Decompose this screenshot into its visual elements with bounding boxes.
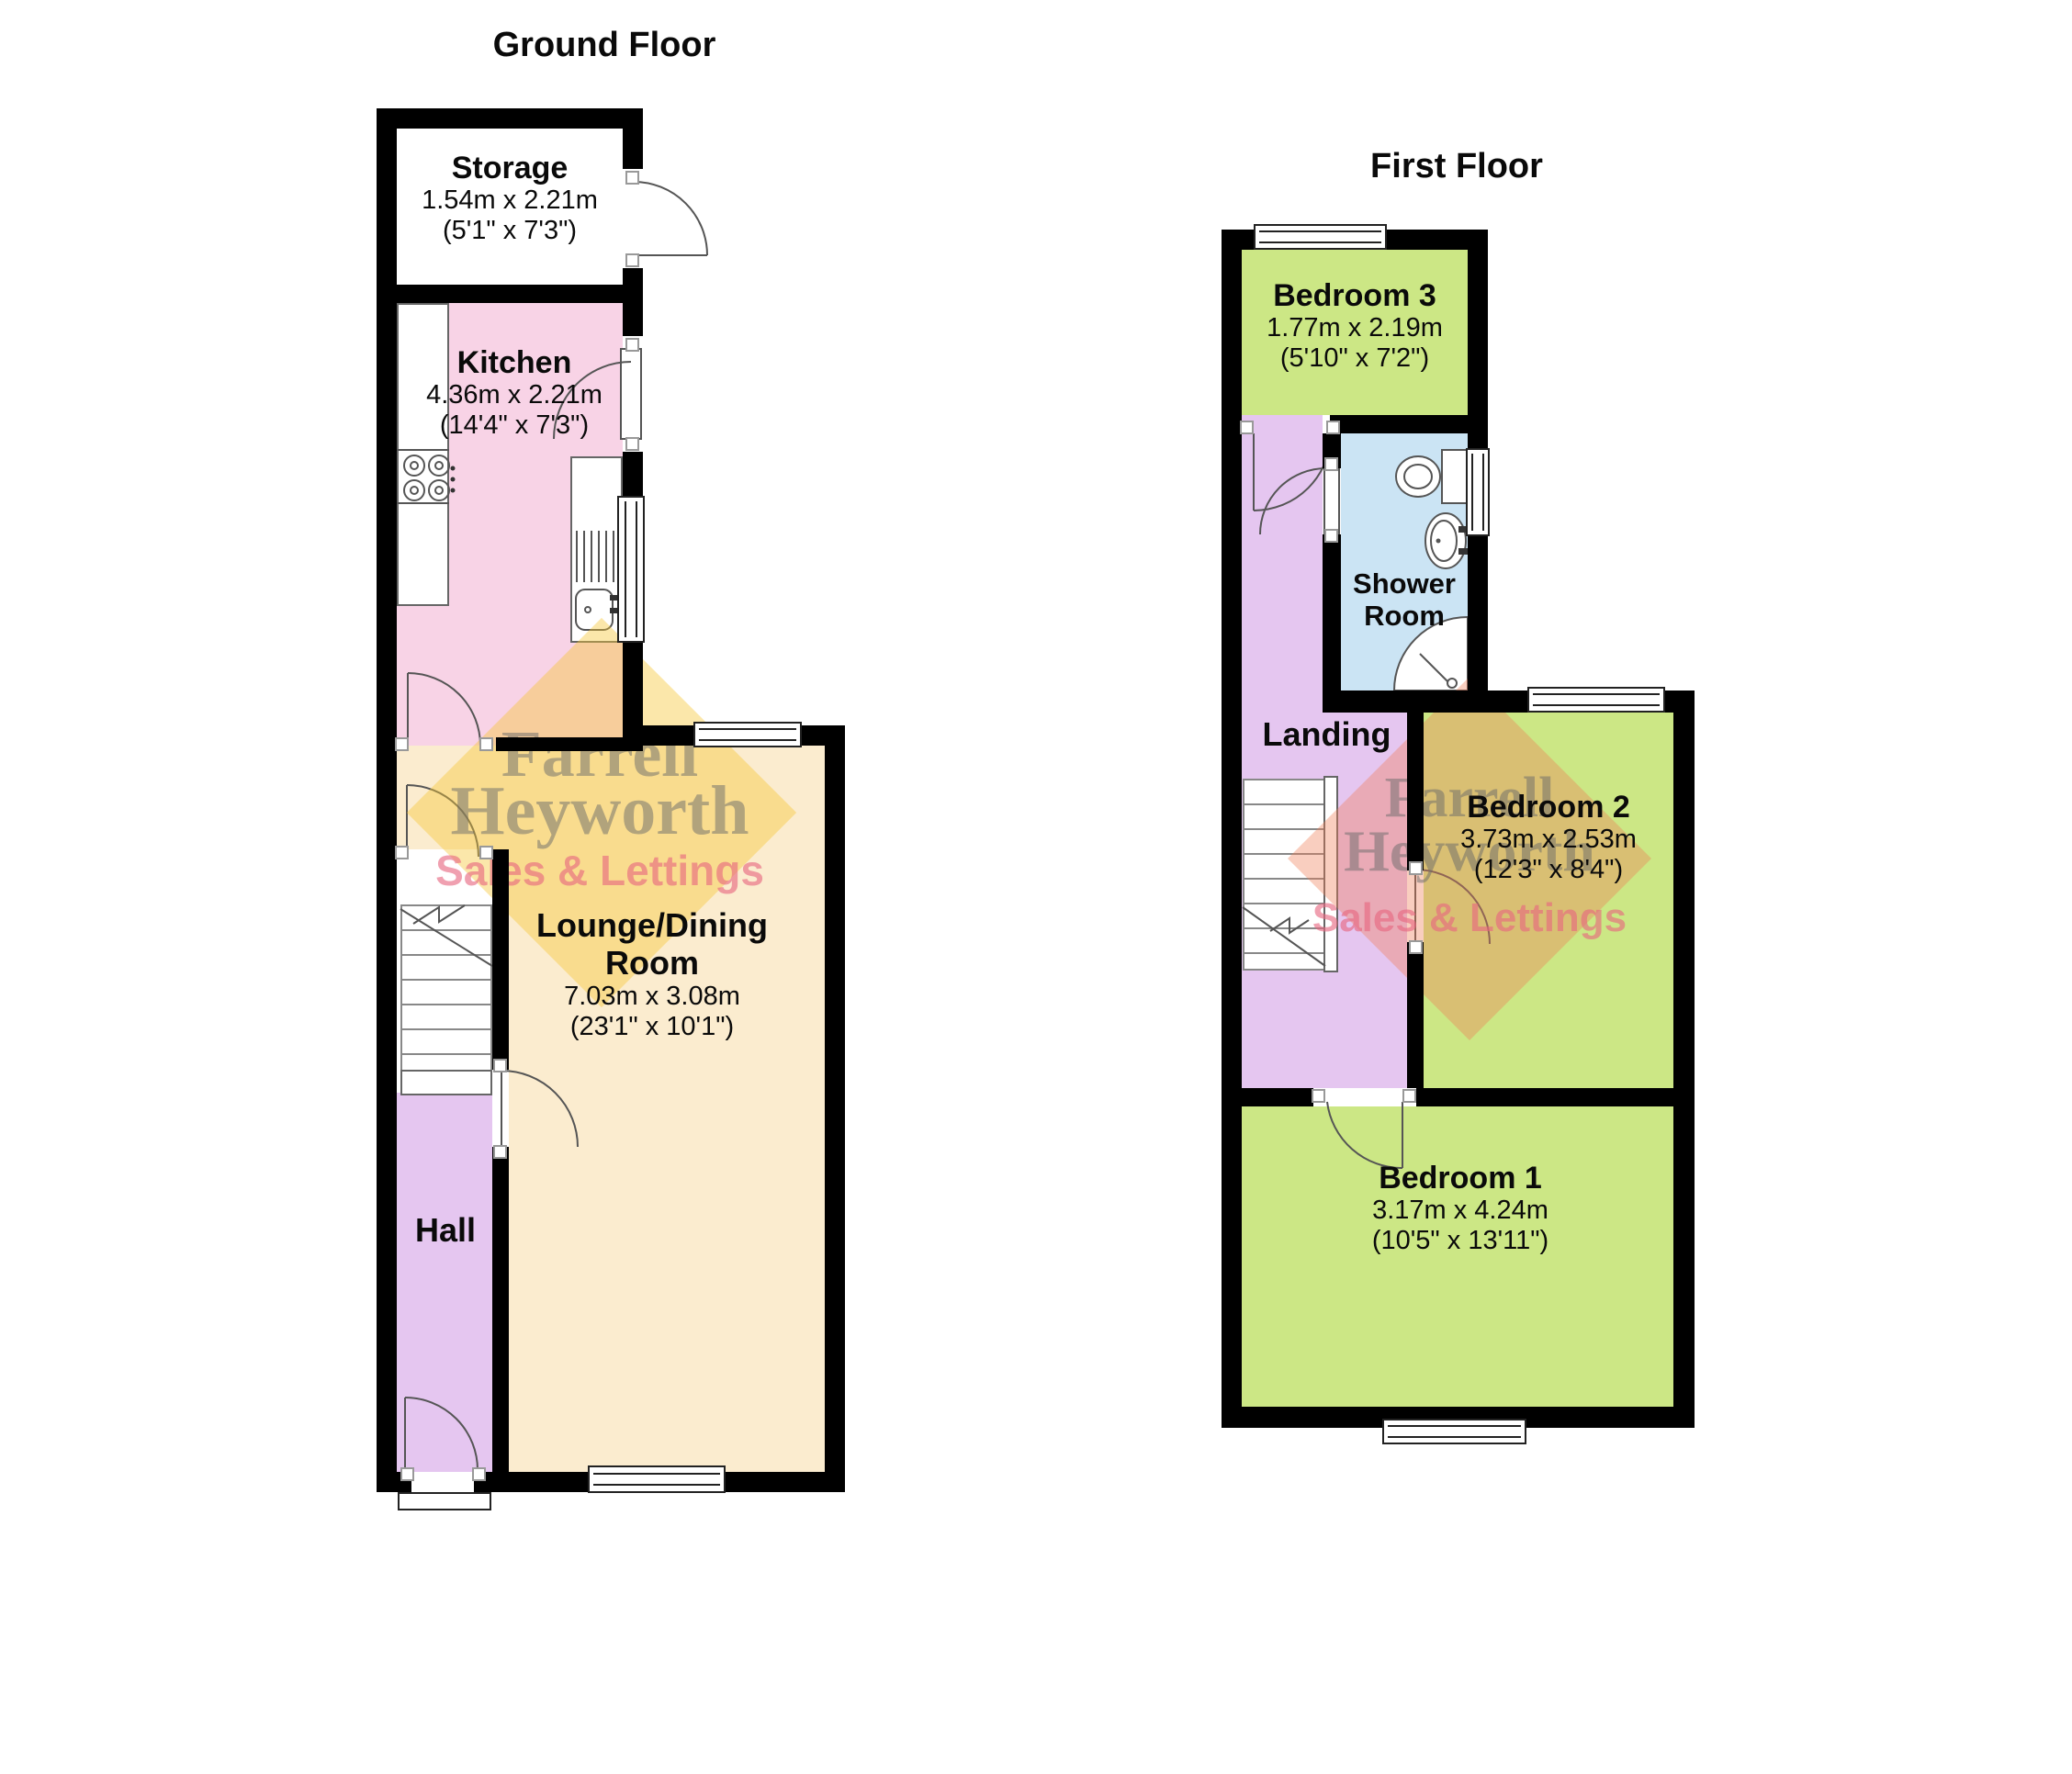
room-size-metric: 3.73m x 2.53m — [1425, 825, 1672, 855]
kitchen-sink-icon — [576, 531, 621, 630]
wall-segment — [623, 268, 643, 336]
wall-segment — [492, 849, 509, 1070]
room-size-metric: 4.36m x 2.21m — [404, 380, 625, 410]
first-floor-title: First Floor — [1273, 147, 1640, 186]
bedroom3-label: Bedroom 3 1.77m x 2.19m (5'10" x 7'2") — [1242, 278, 1468, 374]
wall-segment — [825, 725, 845, 1492]
door-jamb — [1409, 861, 1423, 875]
watermark-tagline: Sales & Lettings — [1286, 898, 1653, 938]
lounge-top-window — [693, 722, 802, 747]
door-jamb — [395, 846, 409, 859]
front-door-threshold — [398, 1492, 491, 1510]
kitchen-window — [617, 496, 645, 643]
ground-floor-title: Ground Floor — [421, 26, 788, 65]
room-name: Hall — [390, 1212, 501, 1250]
storage-label: Storage 1.54m x 2.21m (5'1" x 7'3") — [397, 151, 623, 246]
watermark-name-2: Heyworth — [416, 776, 783, 846]
bedroom2-window — [1527, 687, 1665, 713]
wall-segment — [1323, 534, 1341, 713]
toilet-icon — [1396, 450, 1468, 503]
shower-room-label: Shower Room — [1343, 567, 1466, 632]
door-jamb — [479, 737, 493, 751]
bedroom3-door-icon — [1254, 433, 1331, 511]
door-jamb — [1409, 940, 1423, 954]
wall-segment — [1416, 1088, 1695, 1106]
lounge-label: Lounge/Dining Room 7.03m x 3.08m (23'1" … — [528, 907, 776, 1042]
wall-segment — [397, 285, 623, 303]
room-name: Lounge/Dining Room — [528, 907, 776, 982]
room-size-metric: 3.17m x 4.24m — [1286, 1196, 1635, 1226]
room-name: Shower Room — [1343, 567, 1466, 632]
kitchen-label: Kitchen 4.36m x 2.21m (14'4" x 7'3") — [404, 345, 625, 441]
door-jamb — [472, 1467, 486, 1481]
floorplan-page: { "watermark": { "name_line1": "Farrell"… — [0, 0, 2072, 1774]
wall-segment — [492, 1147, 509, 1472]
bedroom1-door-icon — [1327, 1102, 1402, 1168]
wall-segment — [496, 737, 643, 751]
door-jamb — [400, 1467, 414, 1481]
door-jamb — [1324, 529, 1338, 543]
wall-segment — [623, 108, 643, 169]
door-jamb — [625, 171, 639, 185]
room-name: Storage — [397, 151, 623, 185]
door-jamb — [493, 1059, 507, 1072]
door-jamb — [1326, 421, 1340, 434]
door-jamb — [493, 1145, 507, 1159]
bedroom2-label: Bedroom 2 3.73m x 2.53m (12'3" x 8'4") — [1425, 790, 1672, 885]
front-door-icon — [405, 1398, 478, 1470]
room-size-metric: 7.03m x 3.08m — [528, 982, 776, 1012]
room-name: Kitchen — [404, 345, 625, 380]
door-jamb — [1402, 1089, 1416, 1103]
room-name: Bedroom 2 — [1425, 790, 1672, 825]
wall-segment — [377, 108, 397, 1492]
lounge-door-icon — [501, 1071, 578, 1147]
landing-label: Landing — [1242, 716, 1412, 754]
door-jamb — [1324, 457, 1338, 471]
basin-icon — [1425, 513, 1470, 568]
door-jamb — [1312, 1089, 1325, 1103]
door-jamb — [395, 737, 409, 751]
room-size-imperial: (10'5" x 13'11") — [1286, 1226, 1635, 1256]
hall-label: Hall — [390, 1212, 501, 1250]
room-name: Landing — [1242, 716, 1412, 754]
bedroom1-label: Bedroom 1 3.17m x 4.24m (10'5" x 13'11") — [1286, 1161, 1635, 1256]
room-size-imperial: (23'1" x 10'1") — [528, 1012, 776, 1042]
wall-segment — [1407, 942, 1424, 1088]
room-size-metric: 1.54m x 2.21m — [397, 185, 623, 216]
door-jamb — [479, 846, 493, 859]
wall-segment — [377, 108, 643, 129]
hob-icon — [397, 450, 456, 503]
wall-segment — [1242, 1088, 1313, 1106]
linework-layer — [0, 0, 2072, 1774]
room-name: Bedroom 1 — [1286, 1161, 1635, 1196]
bedroom1-window — [1382, 1419, 1526, 1444]
door-jamb — [625, 338, 639, 352]
shower-room-door-icon — [1260, 468, 1339, 534]
room-size-imperial: (12'3" x 8'4") — [1425, 855, 1672, 885]
door-jamb — [625, 437, 639, 451]
room-size-imperial: (14'4" x 7'3") — [404, 410, 625, 441]
room-size-imperial: (5'10" x 7'2") — [1242, 343, 1468, 374]
room-size-metric: 1.77m x 2.19m — [1242, 313, 1468, 343]
wall-segment — [1222, 230, 1242, 1428]
shower-room-window — [1466, 448, 1490, 536]
storage-door-icon — [634, 182, 707, 255]
wall-segment — [1673, 691, 1695, 1428]
ground-stairs-break-mark — [400, 905, 492, 966]
wall-segment — [1330, 415, 1488, 433]
door-jamb — [1240, 421, 1254, 434]
door-jamb — [625, 253, 639, 267]
room-size-imperial: (5'1" x 7'3") — [397, 216, 623, 246]
bedroom3-window — [1254, 224, 1387, 250]
room-name: Bedroom 3 — [1242, 278, 1468, 313]
watermark-tagline: Sales & Lettings — [416, 849, 783, 892]
lounge-bottom-window — [588, 1465, 726, 1493]
